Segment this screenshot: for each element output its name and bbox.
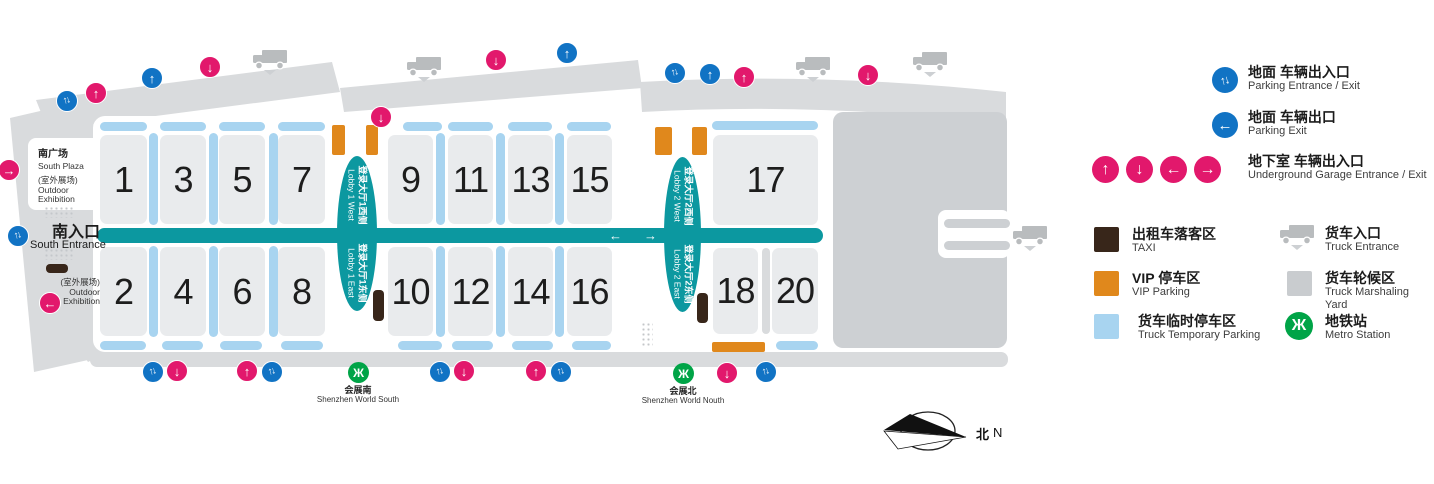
- taxi-swatch: [1094, 227, 1119, 252]
- metro-station-zh: 会展南: [298, 385, 418, 395]
- hall-8: 8: [278, 247, 325, 336]
- truck-temp-parking-strip: [162, 341, 203, 350]
- truck-entrance-icon: [911, 49, 949, 79]
- truck-temp-parking-strip: [448, 122, 493, 131]
- truck-temp-parking-strip: [209, 133, 218, 225]
- truck-temp-parking-strip: [278, 122, 325, 131]
- crosswalk-dots: [44, 206, 74, 218]
- parking-two-way-icon: ↑↓: [142, 361, 164, 383]
- lobby-west-zh: 登录大厅2西侧: [682, 166, 693, 225]
- lobby-2-east-label: 登录大厅2东侧Lobby 2 East: [672, 244, 693, 303]
- crosswalk-dots: [641, 322, 653, 348]
- truck-entrance-icon: [251, 47, 289, 77]
- yard-road-stub: [944, 241, 1010, 250]
- hall-9: 9: [388, 135, 433, 224]
- garage-right-icon: →: [0, 159, 20, 181]
- hall-10: 10: [388, 247, 433, 336]
- truck-temp-parking-strip: [436, 246, 445, 337]
- lobby-west-en: Lobby 2 West: [672, 166, 682, 225]
- truck-temp-parking-strip: [219, 122, 265, 131]
- outdoor-exhibition2-label-zh: (室外展场): [58, 277, 100, 287]
- truck-temp-parking-strip: [508, 122, 552, 131]
- truck-temp-parking-strip: [100, 341, 146, 350]
- parking-exit-icon: ←: [1212, 112, 1238, 138]
- parking-map: 13572468911131510121416171820登录大厅1西侧Lobb…: [0, 0, 1434, 484]
- truck-entrance-icon: [794, 54, 832, 84]
- south-plaza-label-en: South Plaza: [38, 161, 84, 171]
- hall-14: 14: [508, 247, 553, 336]
- hall-5: 5: [219, 135, 265, 224]
- truck-temp-parking-strip: [403, 122, 442, 131]
- metro-station-label: 会展北Shenzhen World Nouth: [623, 386, 743, 405]
- legend-truck-entrance-en: Truck Entrance: [1325, 241, 1399, 254]
- parking-two-way-icon: ↑↓: [664, 62, 686, 84]
- outdoor-exhibition-label-en2: Exhibition: [38, 194, 75, 204]
- parking-up-icon: ↑: [556, 42, 578, 64]
- legend-row-1-en: Parking Entrance / Exit: [1248, 80, 1360, 93]
- lobby-east-en: Lobby 2 East: [672, 244, 682, 303]
- garage-down-icon: ↓: [166, 360, 188, 382]
- legend-row-3: 地下室 车辆出入口 Underground Garage Entrance / …: [1248, 153, 1427, 182]
- hall-15: 15: [567, 135, 612, 224]
- legend-row-2-zh: 地面 车辆出口: [1248, 109, 1336, 125]
- vip-parking-area: [692, 127, 707, 155]
- truck-temp-parking-strip: [398, 341, 442, 350]
- compass-north-en: N: [993, 425, 1002, 440]
- hall-7: 7: [278, 135, 325, 224]
- garage-down-icon: ↓: [716, 362, 738, 384]
- legend-truck-temp: 货车临时停车区 Truck Temporary Parking: [1138, 313, 1260, 342]
- garage-down-icon: ↓: [453, 360, 475, 382]
- garage-down-icon: ↓: [857, 64, 879, 86]
- parking-two-way-icon: ↑↓: [550, 361, 572, 383]
- lobby-1-west-label: 登录大厅1西侧Lobby 1 West: [347, 165, 368, 224]
- garage-up-icon: ↑: [85, 82, 107, 104]
- vip-parking-area: [655, 127, 672, 155]
- metro-station-label: 会展南Shenzhen World South: [298, 385, 418, 404]
- hall-divider: [762, 248, 770, 334]
- vip-parking-swatch: [1094, 271, 1119, 296]
- parking-two-way-icon: ↑↓: [56, 90, 78, 112]
- legend-row-3-zh: 地下室 车辆出入口: [1248, 153, 1427, 169]
- legend-truck-entrance: 货车入口 Truck Entrance: [1325, 225, 1399, 254]
- parking-two-way-icon: ↑↓: [7, 225, 29, 247]
- truck-temp-parking-strip: [512, 341, 553, 350]
- truck-temp-parking-strip: [555, 133, 564, 225]
- hall-2: 2: [100, 247, 147, 336]
- truck-temp-parking-strip: [281, 341, 323, 350]
- legend-truck-temp-zh: 货车临时停车区: [1138, 313, 1260, 329]
- metro-station-icon: Ж: [673, 363, 694, 384]
- vip-parking-area: [332, 125, 345, 155]
- truck-temp-parking-strip: [496, 246, 505, 337]
- legend-taxi-zh: 出租车落客区: [1132, 226, 1216, 242]
- garage-down-icon: ↓: [1126, 156, 1153, 183]
- truck-entrance-icon: [1011, 223, 1049, 253]
- parking-entrance-exit-icon: ↑↓: [1212, 67, 1238, 93]
- south-entrance-label-en: South Entrance: [30, 239, 106, 251]
- taxi-dropoff-area: [697, 293, 708, 323]
- lobby-west-en: Lobby 1 West: [347, 165, 357, 224]
- hall-1: 1: [100, 135, 147, 224]
- legend-vip-zh: VIP 停车区: [1132, 270, 1200, 286]
- metro-station-zh: 会展北: [623, 386, 743, 396]
- legend-metro-zh: 地铁站: [1325, 313, 1390, 329]
- truck-temp-parking-strip: [452, 341, 493, 350]
- outdoor-exhibition-label-zh: (室外展场): [38, 175, 78, 185]
- truck-temp-parking-strip: [496, 133, 505, 225]
- legend-row-1-zh: 地面 车辆出入口: [1248, 64, 1360, 80]
- truck-temp-parking-strip: [269, 246, 278, 337]
- compass-north-zh: 北: [976, 424, 989, 443]
- truck-temp-parking-strip: [572, 341, 611, 350]
- garage-left-icon: ←: [1160, 156, 1187, 183]
- truck-temp-parking-strip: [160, 122, 206, 131]
- truck-entrance-icon: [1278, 222, 1316, 257]
- legend-row-3-en: Underground Garage Entrance / Exit: [1248, 169, 1427, 182]
- hall-4: 4: [160, 247, 206, 336]
- vip-parking-area: [712, 342, 765, 352]
- truck-temp-parking-strip: [567, 122, 611, 131]
- legend-taxi: 出租车落客区 TAXI: [1132, 226, 1216, 255]
- hall-6: 6: [219, 247, 265, 336]
- hall-3: 3: [160, 135, 206, 224]
- taxi-dropoff-area: [373, 290, 384, 321]
- garage-down-icon: ↓: [485, 49, 507, 71]
- lobby-east-zh: 登录大厅1东侧: [357, 243, 368, 302]
- legend-metro-en: Metro Station: [1325, 329, 1390, 342]
- legend-vip: VIP 停车区 VIP Parking: [1132, 270, 1200, 299]
- truck-temp-parking-strip: [712, 121, 818, 130]
- legend-row-2: 地面 车辆出口 Parking Exit: [1248, 109, 1336, 138]
- garage-right-icon: →: [1194, 156, 1221, 183]
- yard-road-stub: [944, 219, 1010, 228]
- taxi-dropoff-area: [46, 264, 68, 273]
- truck-temp-parking-strip: [209, 246, 218, 337]
- vip-parking-area: [366, 125, 378, 155]
- garage-up-icon: ↑: [236, 360, 258, 382]
- legend-truck-temp-en: Truck Temporary Parking: [1138, 329, 1260, 342]
- metro-station-icon: Ж: [1285, 312, 1313, 340]
- truck-temp-parking-strip: [149, 133, 158, 225]
- hall-18: 18: [713, 248, 758, 334]
- truck-temp-parking-strip: [269, 133, 278, 225]
- lobby-east-en: Lobby 1 East: [347, 243, 357, 302]
- parking-two-way-icon: ↑↓: [429, 361, 451, 383]
- garage-up-icon: ↑: [1092, 156, 1119, 183]
- metro-station-en: Shenzhen World South: [298, 395, 418, 404]
- legend-metro: 地铁站 Metro Station: [1325, 313, 1390, 342]
- truck-temp-parking-strip: [436, 133, 445, 225]
- hall-13: 13: [508, 135, 553, 224]
- garage-down-icon: ↓: [199, 56, 221, 78]
- concourse-left-arrow-icon: ←: [609, 229, 622, 243]
- truck-temporary-parking-swatch: [1094, 314, 1119, 339]
- hall-20: 20: [772, 248, 818, 334]
- metro-station-en: Shenzhen World Nouth: [623, 396, 743, 405]
- parking-two-way-icon: ↑↓: [261, 361, 283, 383]
- garage-up-icon: ↑: [733, 66, 755, 88]
- legend-marshaling: 货车轮候区 Truck Marshaling Yard: [1325, 270, 1434, 312]
- hall-12: 12: [448, 247, 493, 336]
- lobby-east-zh: 登录大厅2东侧: [682, 244, 693, 303]
- truck-marshaling-swatch: [1287, 271, 1312, 296]
- truck-entrance-icon: [405, 54, 443, 84]
- parking-up-icon: ↑: [141, 67, 163, 89]
- legend-row-1: 地面 车辆出入口 Parking Entrance / Exit: [1248, 64, 1360, 93]
- parking-up-icon: ↑: [699, 63, 721, 85]
- concourse-right-arrow-icon: →: [644, 229, 657, 243]
- hall-11: 11: [448, 135, 493, 224]
- south-plaza-label-zh: 南广场: [38, 149, 68, 161]
- truck-temp-parking-strip: [149, 246, 158, 337]
- yard-access-road: [938, 210, 1010, 258]
- legend-taxi-en: TAXI: [1132, 242, 1216, 255]
- legend-row-2-en: Parking Exit: [1248, 125, 1336, 138]
- truck-temp-parking-strip: [555, 246, 564, 337]
- garage-up-icon: ↑: [525, 360, 547, 382]
- hall-17: 17: [713, 135, 818, 225]
- truck-temp-parking-strip: [220, 341, 262, 350]
- legend-truck-entrance-zh: 货车入口: [1325, 225, 1399, 241]
- lobby-west-zh: 登录大厅1西侧: [357, 165, 368, 224]
- legend-marshaling-en: Truck Marshaling Yard: [1325, 286, 1434, 312]
- outdoor-exhibition2-label-en2: Exhibition: [58, 296, 100, 306]
- truck-temp-parking-strip: [776, 341, 818, 350]
- metro-station-icon: Ж: [348, 362, 369, 383]
- legend-marshaling-zh: 货车轮候区: [1325, 270, 1434, 286]
- lobby-1-east-label: 登录大厅1东侧Lobby 1 East: [347, 243, 368, 302]
- parking-two-way-icon: ↑↓: [755, 361, 777, 383]
- legend-vip-en: VIP Parking: [1132, 286, 1200, 299]
- lobby-2-west-label: 登录大厅2西侧Lobby 2 West: [672, 166, 693, 225]
- hall-16: 16: [567, 247, 612, 336]
- central-concourse: [97, 228, 823, 243]
- garage-down-icon: ↓: [370, 106, 392, 128]
- truck-temp-parking-strip: [100, 122, 147, 131]
